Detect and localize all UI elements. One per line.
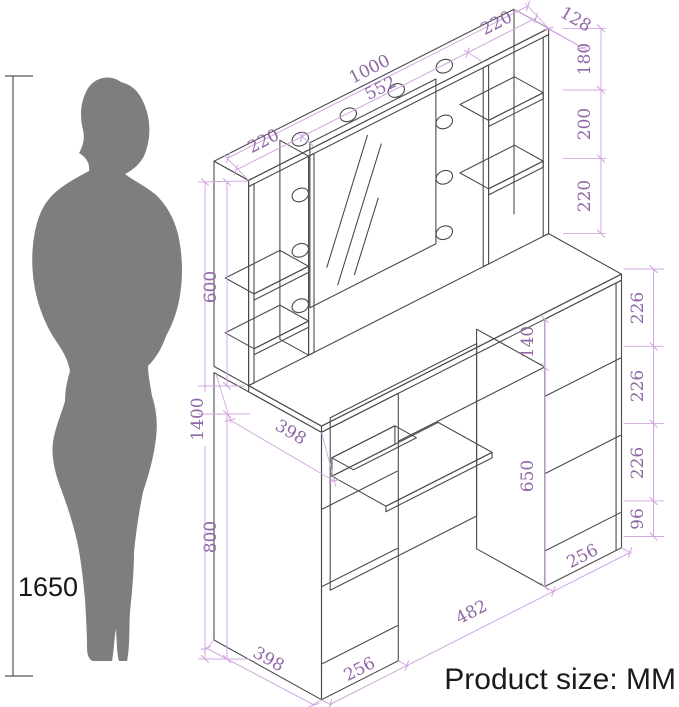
- dim-label-apron: 140: [518, 326, 538, 358]
- dim-label-hutch-depth: 128: [556, 3, 594, 37]
- dim-label-desk-height: 800: [201, 521, 221, 553]
- extension-line: [398, 661, 408, 667]
- furniture-line: [327, 135, 368, 268]
- extension-line: [299, 134, 315, 147]
- furniture-line: [322, 393, 399, 699]
- mirror-bulb: [290, 186, 311, 205]
- mirror-bulb: [290, 130, 311, 149]
- furniture-line: [543, 35, 548, 237]
- furniture-line: [322, 548, 398, 586]
- extension-line: [198, 181, 248, 182]
- furniture-line: [249, 28, 549, 186]
- dim-label-top-right: 220: [478, 7, 516, 40]
- furniture-line: [322, 274, 622, 432]
- dim-label-drawer3: 226: [628, 447, 648, 479]
- dim-label-top-left: 220: [245, 125, 283, 158]
- dim-label-drawer1: 226: [628, 292, 648, 324]
- mirror-bulb: [434, 113, 455, 132]
- furniture-line: [249, 184, 254, 386]
- mirror-bulb: [434, 57, 455, 76]
- furniture-line: [489, 161, 544, 195]
- furniture-line: [545, 358, 621, 396]
- furniture-line: [489, 93, 544, 127]
- dim-label-depth-lower: 398: [249, 643, 287, 676]
- dimension-tick: [328, 699, 331, 707]
- dimension-lines: [198, 1, 664, 707]
- mirror-bulb: [434, 223, 455, 242]
- extension-line: [622, 548, 632, 554]
- furniture-line: [545, 435, 621, 473]
- person-height-label: 1650: [18, 572, 78, 602]
- dim-label-depth-upper: 398: [271, 416, 309, 450]
- furniture-line: [354, 198, 378, 275]
- dim-label-right-seg1: 180: [575, 43, 595, 75]
- furniture-line: [477, 329, 545, 586]
- furniture-line: [338, 144, 382, 286]
- extension-line: [311, 700, 322, 706]
- furniture-line: [332, 426, 395, 476]
- furniture-line: [330, 344, 476, 591]
- dim-label-right-seg2: 200: [575, 108, 595, 140]
- dim-label-kick: 96: [628, 508, 648, 530]
- mirror-bulb: [338, 105, 359, 124]
- dim-label-hutch-height: 600: [201, 271, 221, 303]
- furniture-line: [310, 79, 436, 308]
- furniture-drawing: [214, 9, 622, 700]
- mirror-bulb: [434, 168, 455, 187]
- furniture-dimension-diagram: 1650 1000 552 220 220 128 180 200 220 60…: [0, 0, 679, 707]
- extension-line: [322, 432, 337, 487]
- diagram-page: 1650 1000 552 220 220 128 180 200 220 60…: [0, 0, 679, 707]
- furniture-line: [398, 367, 544, 441]
- furniture-line: [254, 266, 309, 300]
- extension-line: [224, 155, 249, 180]
- furniture-line: [545, 280, 622, 586]
- dim-label-knee-height: 650: [518, 460, 538, 492]
- extension-line: [514, 9, 552, 30]
- dim-label-width-center: 482: [453, 596, 491, 629]
- furniture-line: [483, 65, 488, 267]
- extension-line: [525, 3, 549, 28]
- dimension-labels: 1000 552 220 220 128 180 200 220 600 140…: [188, 3, 648, 686]
- dim-label-total-height: 1400: [188, 397, 208, 440]
- product-size-note: Product size: MM: [444, 663, 676, 696]
- furniture-line: [332, 426, 417, 470]
- dim-label-right-seg3: 220: [575, 180, 595, 212]
- furniture-line: [254, 321, 309, 355]
- dim-label-drawer2: 226: [628, 370, 648, 402]
- mirror-bulb: [290, 241, 311, 260]
- extension-line: [322, 700, 332, 706]
- extension-line: [545, 587, 555, 593]
